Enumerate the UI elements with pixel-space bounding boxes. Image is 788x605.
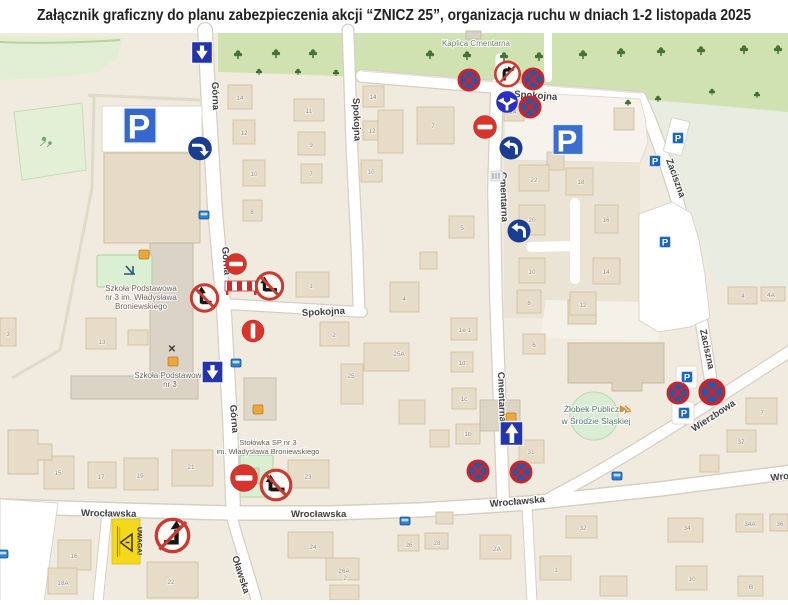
svg-text:Kaplica Cmentarna: Kaplica Cmentarna [442,39,511,48]
svg-text:1d: 1d [458,360,466,367]
svg-text:w Środzie Śląskiej: w Środzie Śląskiej [561,415,631,426]
svg-text:14: 14 [236,95,244,102]
svg-text:2A: 2A [493,546,502,553]
svg-text:10: 10 [250,171,258,178]
svg-text:1: 1 [309,283,313,290]
svg-text:34: 34 [683,525,691,532]
svg-text:25: 25 [347,373,355,380]
svg-text:22: 22 [530,177,538,184]
svg-text:26: 26 [405,542,413,549]
svg-text:Spokojna: Spokojna [302,306,346,319]
svg-text:P: P [128,109,151,147]
svg-text:8: 8 [527,300,531,307]
svg-text:Wroc: Wroc [770,470,788,484]
svg-text:18: 18 [577,179,585,186]
svg-text:4: 4 [741,293,745,300]
svg-text:Załącznik graficzny do planu z: Załącznik graficzny do planu zabezpiecze… [37,7,751,24]
svg-text:1c: 1c [461,396,469,403]
svg-text:6: 6 [532,342,536,349]
svg-text:Wrocławska: Wrocławska [291,509,347,520]
svg-text:18A: 18A [57,580,69,587]
svg-text:24: 24 [309,544,317,551]
svg-text:1e 1: 1e 1 [459,327,472,334]
svg-text:37: 37 [737,439,745,446]
svg-text:2: 2 [332,332,336,339]
svg-text:14: 14 [602,269,610,276]
svg-text:10: 10 [528,269,536,276]
svg-text:12: 12 [579,302,587,309]
svg-text:12: 12 [240,130,248,137]
svg-text:10: 10 [688,576,696,583]
svg-text:10: 10 [367,169,375,176]
svg-text:20: 20 [528,217,536,224]
svg-text:12: 12 [368,128,376,135]
svg-text:1b: 1b [464,431,472,438]
svg-text:nr 3: nr 3 [163,380,177,389]
svg-text:11: 11 [306,108,313,115]
svg-text:Stołówka SP nr 3: Stołówka SP nr 3 [239,438,296,447]
svg-text:nr 3 im. Władysława: nr 3 im. Władysława [105,293,177,302]
svg-text:23: 23 [304,474,312,481]
svg-text:P: P [557,124,578,159]
svg-text:26A: 26A [338,568,350,575]
svg-text:4: 4 [402,296,406,303]
svg-text:2: 2 [343,575,347,582]
svg-text:Wrocławska: Wrocławska [81,508,137,520]
svg-text:16: 16 [602,217,610,224]
svg-text:31: 31 [527,449,535,456]
svg-text:17: 17 [97,474,105,481]
svg-text:32: 32 [579,525,587,532]
svg-text:19: 19 [136,473,144,480]
svg-text:16: 16 [70,553,78,560]
svg-text:7: 7 [431,123,435,130]
svg-text:5: 5 [460,225,464,232]
svg-text:34A: 34A [744,521,756,528]
svg-text:Szkoła Podstawowa: Szkoła Podstawowa [134,371,206,380]
svg-text:✕: ✕ [168,344,176,355]
svg-text:21: 21 [187,464,195,471]
svg-text:7: 7 [309,171,313,178]
svg-text:im. Władysława Broniewskiego: im. Władysława Broniewskiego [217,447,320,456]
svg-text:B: B [749,584,753,591]
svg-text:22: 22 [167,579,175,586]
svg-text:Szkoła Podstawowa: Szkoła Podstawowa [105,284,177,293]
svg-text:UWAGA!: UWAGA! [136,527,143,555]
svg-text:36: 36 [776,521,784,528]
svg-text:Górna: Górna [209,82,221,111]
svg-text:28: 28 [433,540,441,547]
svg-text:3: 3 [6,331,10,338]
svg-text:13: 13 [98,339,106,346]
svg-text:Żłobek Publiczny: Żłobek Publiczny [564,404,629,414]
svg-text:25A: 25A [393,351,405,358]
svg-text:7: 7 [760,410,764,417]
svg-text:9: 9 [309,142,313,149]
svg-text:14: 14 [369,94,377,101]
svg-text:15: 15 [54,470,62,477]
svg-text:8: 8 [250,209,254,216]
svg-text:Spokojna: Spokojna [350,98,363,142]
svg-text:Broniewskiego: Broniewskiego [115,302,168,311]
svg-text:4A: 4A [767,292,776,299]
svg-text:1: 1 [554,567,558,574]
